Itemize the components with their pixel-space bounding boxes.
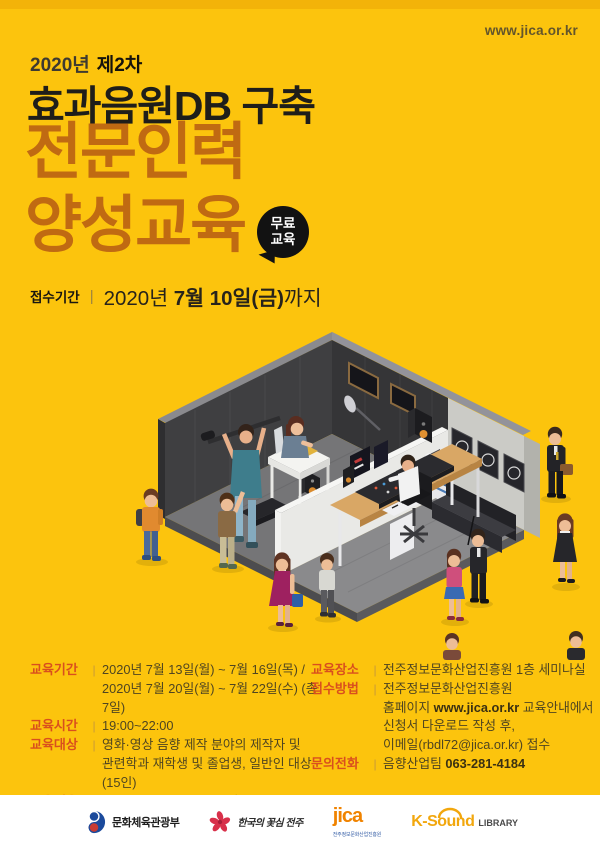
person-foreground-left: [443, 633, 461, 660]
jica-wordmark: jica: [333, 806, 362, 826]
info-label: 교육시간: [30, 717, 86, 736]
info-row: 접수방법|전주정보문화산업진흥원홈페이지 www.jica.or.kr 교육안내…: [311, 680, 600, 755]
jica-sub-label: 전주정보문화산업진흥원: [333, 833, 381, 838]
headphone-arc-icon: [437, 807, 463, 819]
info-row: 교육기간|2020년 7월 13일(월) ~ 7월 16일(목) /2020년 …: [30, 661, 322, 717]
info-value: 전주정보문화산업진흥원홈페이지 www.jica.or.kr 교육안내에서신청서…: [383, 680, 593, 755]
info-divider: |: [86, 736, 102, 755]
info-label: 교육기간: [30, 661, 86, 680]
info-row: 교육시간|19:00~22:00: [30, 717, 322, 736]
info-divider: |: [367, 755, 383, 774]
info-label: 교육장소: [311, 661, 367, 680]
person-foreground-right: [567, 631, 585, 660]
info-row: 교육대상|영화·영상 음향 제작 분야의 제작자 및관련학과 재학생 및 졸업생…: [30, 736, 322, 792]
info-divider: |: [86, 661, 102, 680]
logo-jica: jica 전주정보문화산업진흥원: [333, 806, 381, 838]
ksound-library-label: LIBRARY: [478, 818, 518, 828]
info-label: 교육대상: [30, 736, 86, 755]
info-label: 접수방법: [311, 680, 367, 699]
info-value: 영화·영상 음향 제작 분야의 제작자 및관련학과 재학생 및 졸업생, 일반인…: [102, 736, 322, 792]
info-divider: |: [367, 680, 383, 699]
info-value: 전주정보문화산업진흥원 1층 세미나실: [383, 661, 586, 680]
info-row: 교육장소|전주정보문화산업진흥원 1층 세미나실: [311, 661, 600, 680]
jeonju-label: 한국의 꽃심 전주: [237, 814, 302, 829]
info-value: 19:00~22:00: [102, 717, 174, 736]
info-divider: |: [367, 661, 383, 680]
mcst-emblem-icon: [82, 810, 106, 834]
person-gray-top: [319, 553, 336, 618]
jeonju-flower-icon: [209, 811, 231, 833]
mcst-label: 문화체육관광부: [112, 814, 179, 830]
info-row: 문의전화|음향산업팀 063-281-4184: [311, 755, 600, 774]
logo-mcst: 문화체육관광부: [82, 810, 179, 834]
info-column-right: 교육장소|전주정보문화산업진흥원 1층 세미나실접수방법|전주정보문화산업진흥원…: [311, 661, 600, 774]
footer-logo-bar: 문화체육관광부 한국의 꽃심 전주 jica 전주정보문화산업진흥원: [0, 795, 600, 848]
info-value: 음향산업팀 063-281-4184: [383, 755, 525, 774]
info-label: 문의전화: [311, 755, 367, 774]
info-divider: |: [86, 717, 102, 736]
logo-jeonju: 한국의 꽃심 전주: [209, 811, 302, 833]
person-black-dress: [553, 513, 577, 583]
info-value: 2020년 7월 13일(월) ~ 7월 16일(목) /2020년 7월 20…: [102, 661, 322, 717]
logo-ksound: K-Sound LIBRARY: [411, 813, 518, 831]
person-briefcase: [547, 427, 573, 499]
poster: www.jica.or.kr 2020년제2차 효과음원DB 구축 전문인력 양…: [0, 0, 600, 848]
